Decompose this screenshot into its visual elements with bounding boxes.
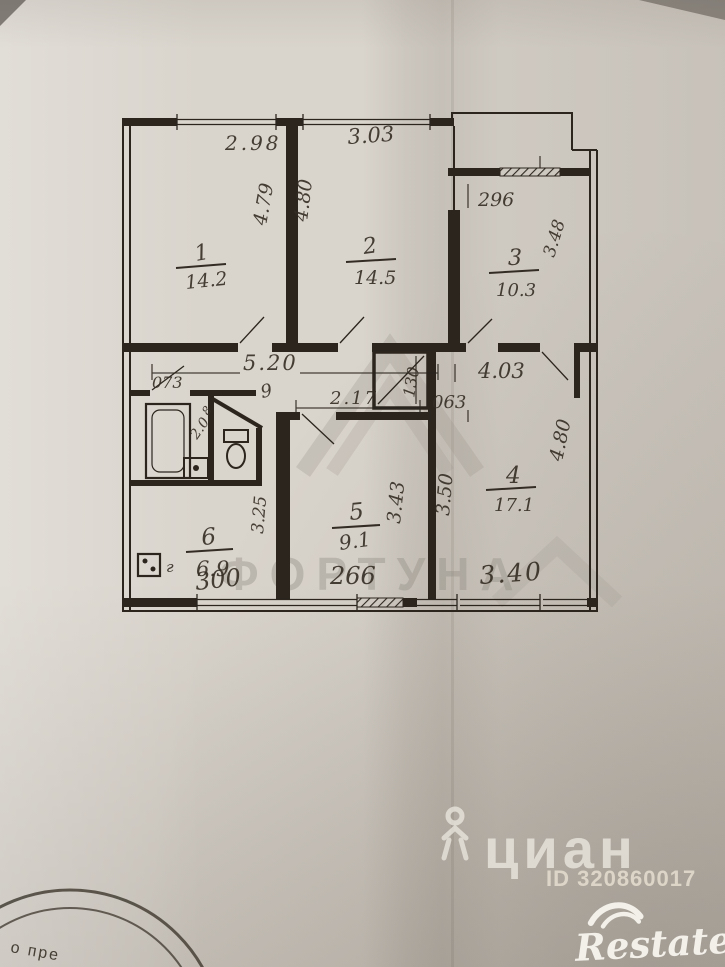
sink-icon [184,458,208,478]
hall-number: 9 [259,380,275,403]
room-6-number: 6 [200,524,217,551]
stamp: о пре [0,890,222,967]
floor-plan-svg: ФОРТУНА [0,0,725,967]
room-5-number: 5 [348,499,365,526]
room-4-area: 17.1 [494,495,534,516]
dim-room5-depth: 3.43 [383,480,409,524]
room-2-fraction-line [346,259,396,262]
dim-room2-depth: 4.80 [290,178,317,224]
dim-hall-door: 073 [152,373,183,392]
dim-room1-width: 2.98 [224,131,282,155]
room-5-area: 9.1 [337,527,372,555]
dim-duct-width: 063 [432,392,466,413]
cian-person-pin-icon [444,809,466,858]
room-1-number: 1 [193,240,211,267]
dim-room1-depth: 4.79 [249,181,278,227]
room-1-area: 14.2 [184,268,228,294]
dim-kitchen-inner: 3.25 [248,495,271,534]
room-5-fraction-line [332,525,380,528]
dim-room5-width: 266 [329,562,376,590]
room-6-area: 6.9 [196,557,229,581]
dim-entry-width: 4.03 [477,359,525,383]
stamp-text: о пре [9,939,61,964]
gas-mark: г [166,558,174,576]
cian-watermark: циан ID 320860017 [444,809,696,891]
dim-room2-width: 3.03 [347,122,395,149]
dim-room4-depth: 4.80 [545,417,576,464]
room-2-number: 2 [360,233,378,260]
toilet-icon [224,430,248,468]
floor-plan-photo: ФОРТУНА [0,0,725,967]
stove-icon [138,554,160,576]
room-4-number: 4 [505,463,521,489]
dim-room3-depth: 3.48 [540,217,570,259]
room-3-area: 10.3 [496,280,536,301]
dim-room4-width: 3.40 [478,557,544,590]
dim-room4-inner: 3.50 [432,472,458,516]
restate-logo: Restate [572,899,725,967]
dim-balcony-width: 296 [477,189,514,211]
dim-hall-segment: 2.17 [329,388,378,409]
room-2-area: 14.5 [354,267,396,289]
restate-text: Restate [573,918,725,967]
room-3-number: 3 [508,246,522,271]
cian-id-text: ID 320860017 [546,866,696,891]
dimension-labels: 2.98 3.03 296 4.79 4.80 3.48 5.20 4.03 0… [152,122,576,596]
dim-hall-width: 5.20 [243,351,298,375]
